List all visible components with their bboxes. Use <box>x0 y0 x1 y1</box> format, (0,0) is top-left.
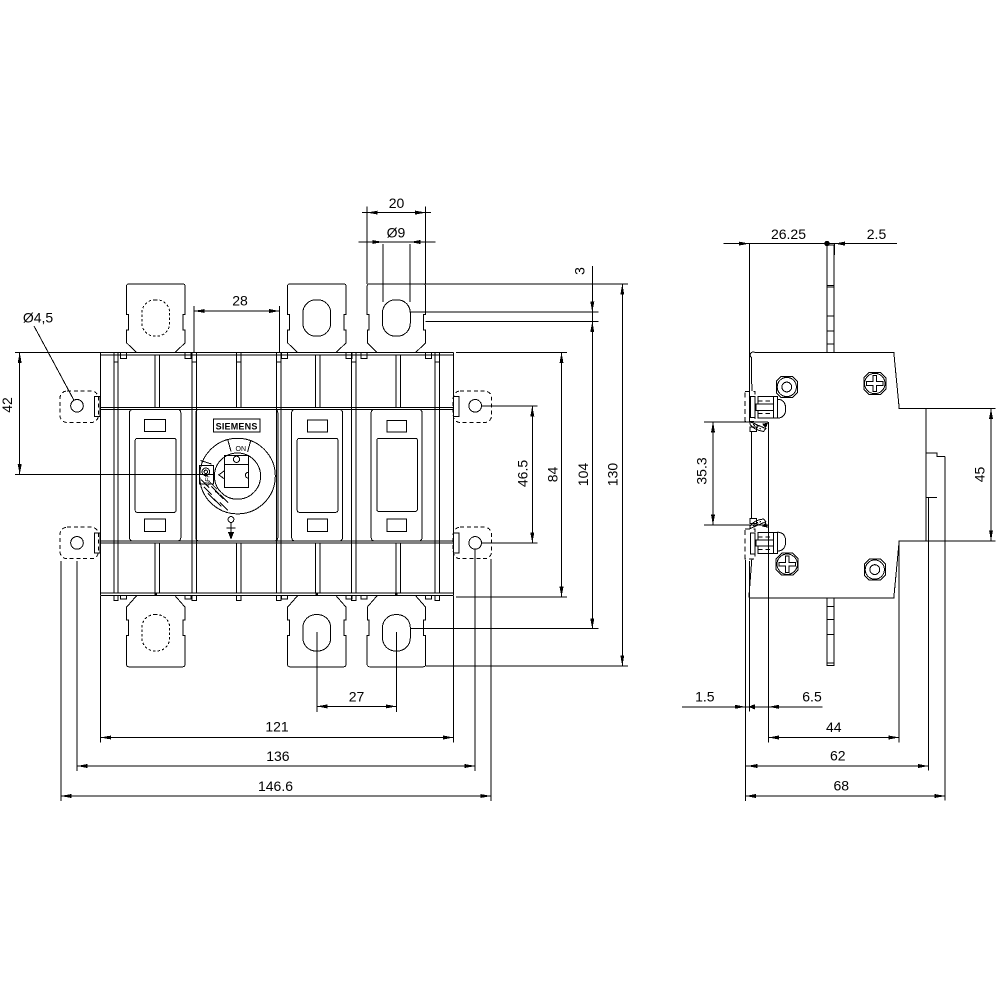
svg-text:130: 130 <box>605 463 621 487</box>
svg-text:46.5: 46.5 <box>515 460 531 487</box>
svg-text:SIEMENS: SIEMENS <box>216 422 258 432</box>
svg-text:136: 136 <box>266 748 290 764</box>
svg-text:28: 28 <box>232 293 248 309</box>
svg-text:68: 68 <box>834 778 850 794</box>
svg-text:26.25: 26.25 <box>771 226 806 242</box>
svg-text:27: 27 <box>349 689 365 705</box>
svg-text:44: 44 <box>826 719 842 735</box>
svg-text:OFF: OFF <box>206 474 212 486</box>
svg-text:84: 84 <box>545 467 561 483</box>
svg-text:35.3: 35.3 <box>694 457 710 484</box>
svg-text:3: 3 <box>572 267 588 275</box>
svg-text:6.5: 6.5 <box>802 689 822 705</box>
svg-text:45: 45 <box>972 467 988 483</box>
svg-text:2.5: 2.5 <box>867 226 887 242</box>
svg-text:42: 42 <box>0 397 15 413</box>
svg-text:146.6: 146.6 <box>258 778 293 794</box>
svg-text:121: 121 <box>265 719 289 735</box>
svg-text:62: 62 <box>830 748 846 764</box>
svg-text:104: 104 <box>575 463 591 487</box>
svg-text:20: 20 <box>389 195 405 211</box>
svg-text:1.5: 1.5 <box>695 689 715 705</box>
svg-text:ON: ON <box>236 446 247 453</box>
svg-text:Ø9: Ø9 <box>387 225 406 241</box>
svg-text:Ø4,5: Ø4,5 <box>23 310 54 326</box>
